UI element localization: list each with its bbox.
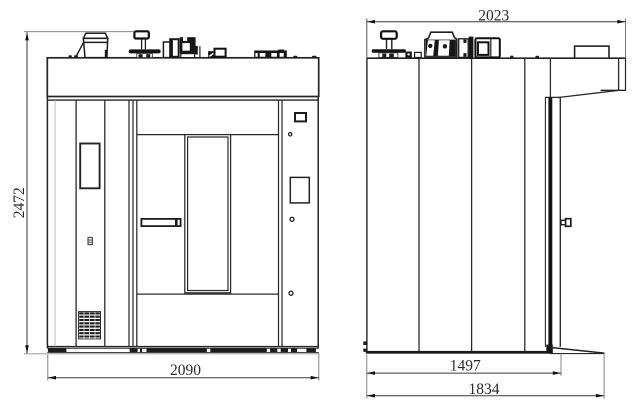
svg-text:2472: 2472 xyxy=(11,187,28,218)
svg-text:1497: 1497 xyxy=(450,357,481,374)
svg-text:2023: 2023 xyxy=(478,7,509,24)
svg-text:2090: 2090 xyxy=(170,362,201,379)
svg-text:1834: 1834 xyxy=(469,381,500,398)
